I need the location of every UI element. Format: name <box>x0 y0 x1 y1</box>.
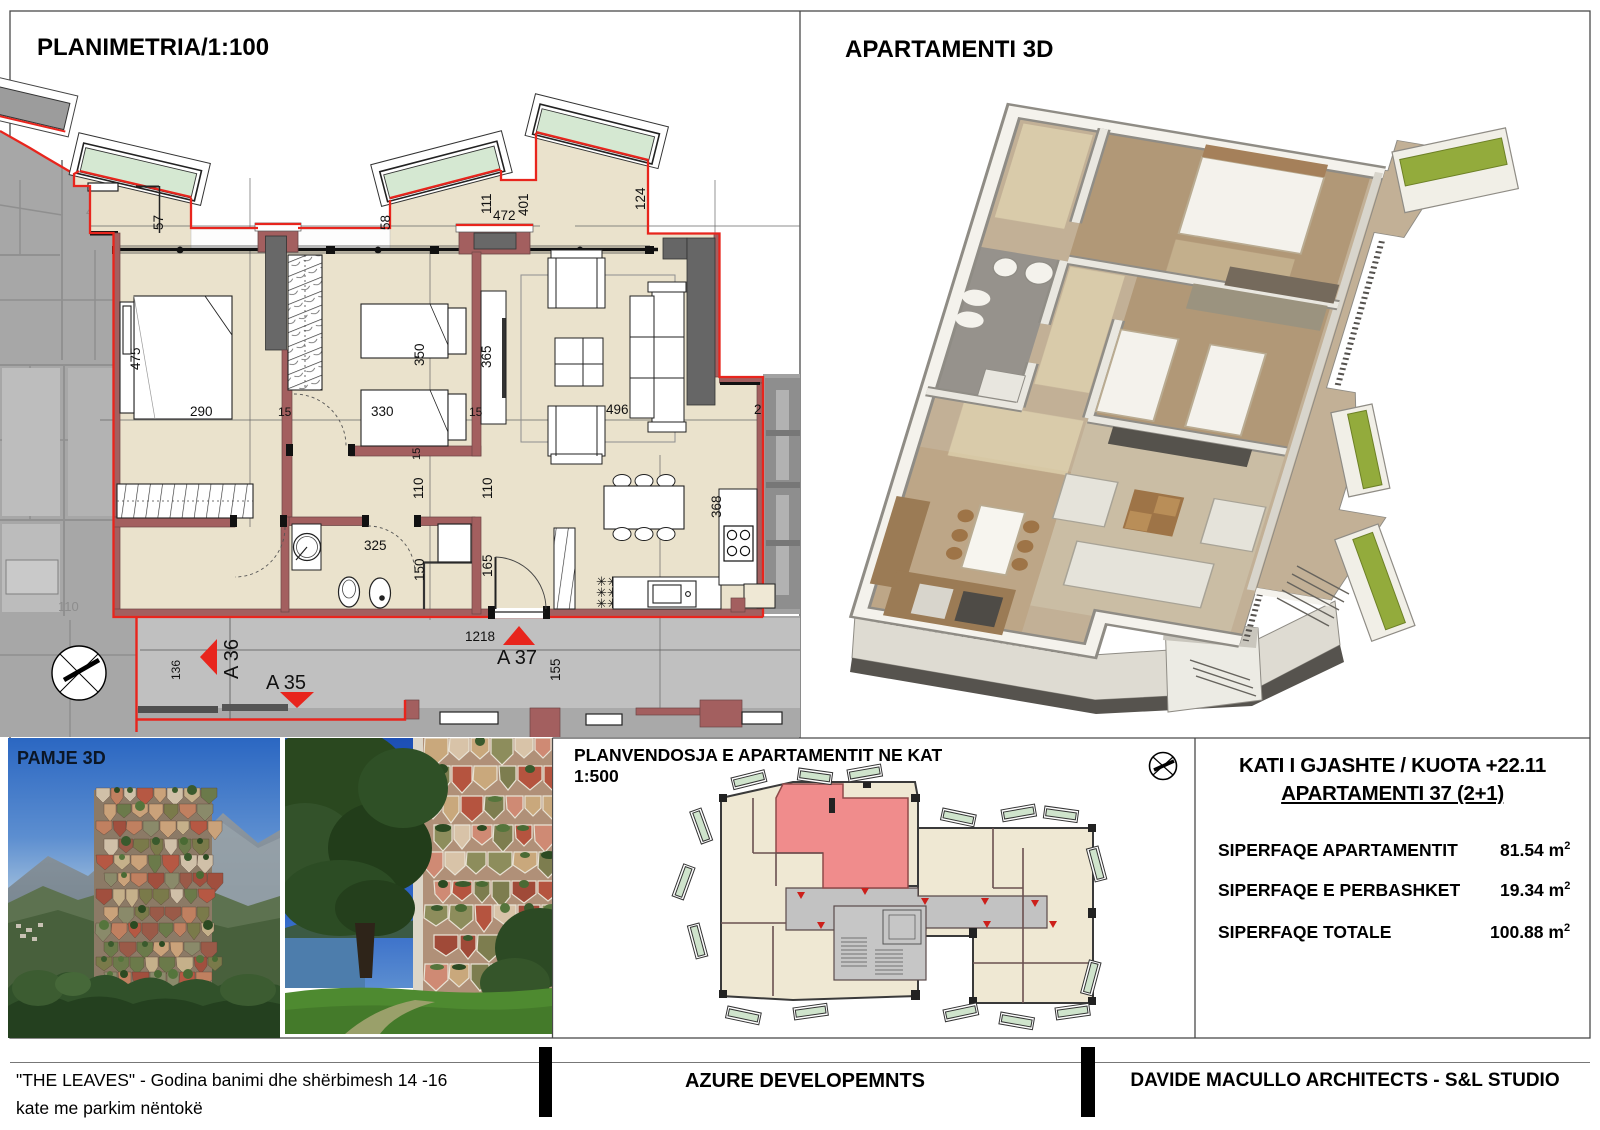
svg-text:110: 110 <box>480 477 495 499</box>
svg-text:110: 110 <box>58 599 79 614</box>
svg-text:58: 58 <box>378 215 393 230</box>
svg-text:A 36: A 36 <box>221 639 243 679</box>
svg-text:136: 136 <box>169 660 183 680</box>
svg-text:496: 496 <box>606 402 629 417</box>
svg-text:365: 365 <box>479 345 494 368</box>
svg-text:111: 111 <box>479 193 494 214</box>
svg-text:110: 110 <box>411 477 426 499</box>
svg-text:15: 15 <box>278 405 292 419</box>
svg-text:472: 472 <box>493 208 516 223</box>
svg-text:124: 124 <box>633 187 648 210</box>
svg-text:350: 350 <box>412 343 427 366</box>
svg-text:165: 165 <box>480 554 495 577</box>
svg-text:57: 57 <box>151 215 166 230</box>
svg-text:15: 15 <box>469 405 483 419</box>
svg-text:2: 2 <box>754 402 762 417</box>
svg-text:1218: 1218 <box>465 629 495 644</box>
svg-text:150: 150 <box>412 558 427 581</box>
svg-text:325: 325 <box>364 538 387 553</box>
svg-text:475: 475 <box>128 347 143 370</box>
svg-text:A 35: A 35 <box>266 672 306 694</box>
svg-text:330: 330 <box>371 404 394 419</box>
svg-text:401: 401 <box>516 193 531 216</box>
svg-text:A 37: A 37 <box>497 647 537 669</box>
svg-text:155: 155 <box>548 658 563 681</box>
svg-text:15: 15 <box>411 448 423 460</box>
svg-text:368: 368 <box>709 495 724 518</box>
svg-text:290: 290 <box>190 404 213 419</box>
